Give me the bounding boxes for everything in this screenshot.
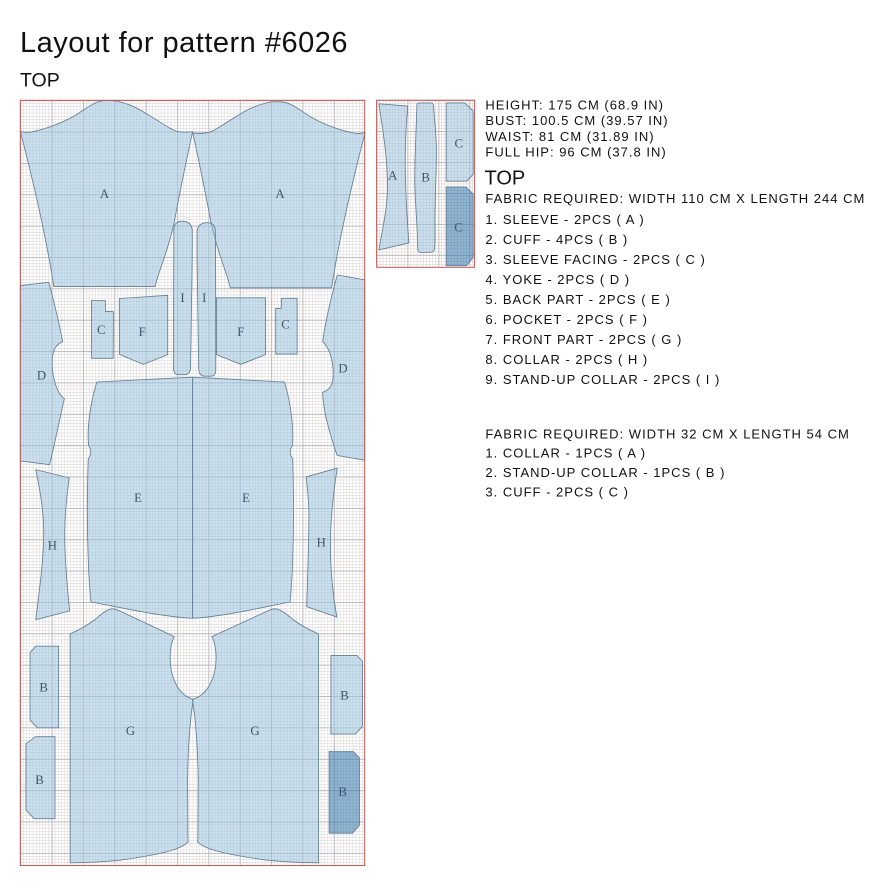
svg-text:I: I bbox=[202, 291, 206, 305]
svg-text:C: C bbox=[454, 221, 463, 235]
svg-text:FABRIC REQUIRED: WIDTH 32 CM X: FABRIC REQUIRED: WIDTH 32 CM X LENGTH 54… bbox=[485, 426, 849, 441]
svg-text:A: A bbox=[388, 169, 398, 183]
svg-text:G: G bbox=[126, 724, 135, 738]
svg-text:F: F bbox=[139, 325, 146, 339]
svg-text:7. FRONT PART - 2PCS ( G ): 7. FRONT PART - 2PCS ( G ) bbox=[485, 332, 682, 347]
svg-text:A: A bbox=[275, 187, 285, 201]
svg-text:1. COLLAR - 1PCS ( A ): 1. COLLAR - 1PCS ( A ) bbox=[485, 446, 646, 461]
svg-text:D: D bbox=[37, 368, 46, 382]
svg-text:FULL HIP: 96 CM (37.8 IN): FULL HIP: 96 CM (37.8 IN) bbox=[485, 144, 666, 159]
svg-text:2. STAND-UP COLLAR - 1PCS ( B: 2. STAND-UP COLLAR - 1PCS ( B ) bbox=[485, 465, 725, 480]
svg-text:H: H bbox=[317, 536, 326, 550]
svg-text:B: B bbox=[35, 773, 44, 787]
svg-text:E: E bbox=[242, 491, 250, 505]
svg-text:WAIST: 81 CM (31.89 IN): WAIST: 81 CM (31.89 IN) bbox=[485, 129, 654, 144]
svg-text:6. POCKET - 2PCS ( F ): 6. POCKET - 2PCS ( F ) bbox=[485, 312, 648, 327]
svg-text:2. CUFF - 4PCS ( B ): 2. CUFF - 4PCS ( B ) bbox=[485, 232, 628, 247]
svg-text:5. BACK PART - 2PCS ( E ): 5. BACK PART - 2PCS ( E ) bbox=[485, 292, 670, 307]
svg-text:BUST: 100.5 CM (39.57 IN): BUST: 100.5 CM (39.57 IN) bbox=[485, 113, 668, 128]
svg-text:4. YOKE - 2PCS ( D ): 4. YOKE - 2PCS ( D ) bbox=[485, 272, 630, 287]
svg-text:D: D bbox=[338, 361, 347, 375]
svg-text:H: H bbox=[48, 539, 57, 553]
svg-text:Layout for pattern #6026: Layout for pattern #6026 bbox=[20, 27, 348, 59]
svg-text:8. COLLAR - 2PCS ( H ): 8. COLLAR - 2PCS ( H ) bbox=[485, 352, 648, 367]
svg-text:1. SLEEVE - 2PCS ( A ): 1. SLEEVE - 2PCS ( A ) bbox=[485, 212, 644, 227]
svg-text:TOP: TOP bbox=[485, 167, 526, 189]
svg-text:3. CUFF - 2PCS ( C ): 3. CUFF - 2PCS ( C ) bbox=[485, 485, 629, 500]
svg-text:F: F bbox=[237, 325, 244, 339]
svg-text:B: B bbox=[338, 785, 347, 799]
svg-text:TOP: TOP bbox=[20, 70, 60, 92]
svg-text:I: I bbox=[180, 291, 184, 305]
svg-text:9. STAND-UP COLLAR - 2PCS ( I: 9. STAND-UP COLLAR - 2PCS ( I ) bbox=[485, 372, 720, 387]
svg-text:E: E bbox=[134, 491, 142, 505]
svg-text:C: C bbox=[97, 323, 106, 337]
svg-text:A: A bbox=[100, 187, 110, 201]
svg-text:G: G bbox=[250, 724, 259, 738]
svg-text:C: C bbox=[455, 136, 464, 150]
svg-text:FABRIC REQUIRED: WIDTH 110 CM: FABRIC REQUIRED: WIDTH 110 CM X LENGTH 2… bbox=[485, 191, 865, 206]
svg-text:B: B bbox=[39, 681, 48, 695]
svg-text:HEIGHT: 175 CM (68.9 IN): HEIGHT: 175 CM (68.9 IN) bbox=[485, 97, 664, 112]
svg-text:3. SLEEVE FACING - 2PCS ( C ): 3. SLEEVE FACING - 2PCS ( C ) bbox=[485, 252, 705, 267]
svg-text:C: C bbox=[281, 318, 290, 332]
svg-text:B: B bbox=[340, 688, 349, 702]
svg-text:B: B bbox=[421, 171, 430, 185]
